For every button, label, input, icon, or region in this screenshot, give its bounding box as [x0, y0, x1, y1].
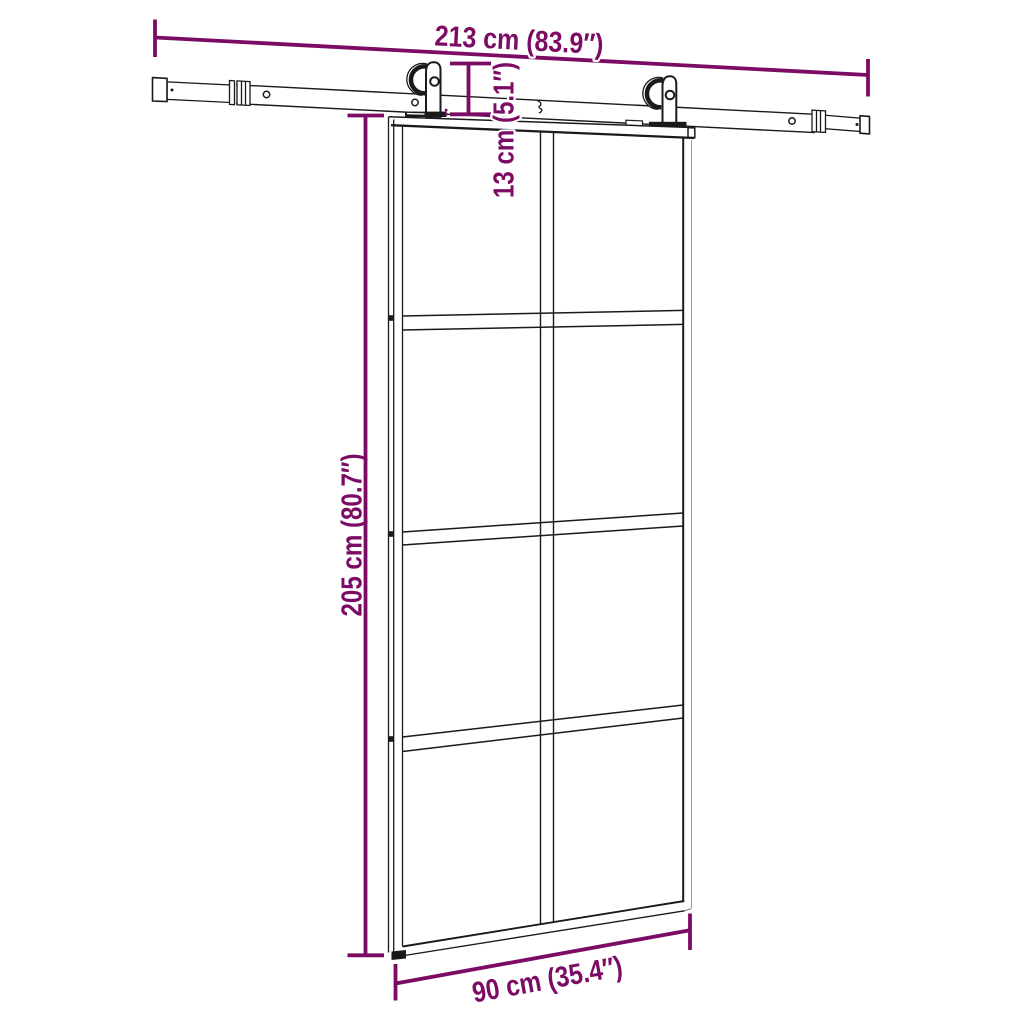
svg-text:13 cm (5.1″): 13 cm (5.1″) — [489, 62, 521, 198]
